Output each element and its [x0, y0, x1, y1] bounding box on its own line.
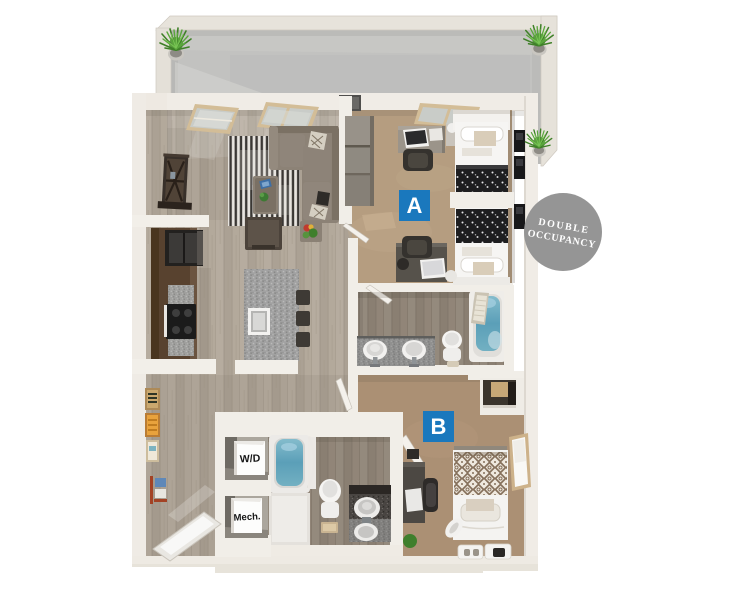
svg-text:W/D: W/D: [240, 452, 261, 465]
svg-text:Mech.: Mech.: [233, 511, 260, 523]
svg-text:A: A: [407, 193, 423, 218]
svg-text:B: B: [431, 414, 447, 439]
